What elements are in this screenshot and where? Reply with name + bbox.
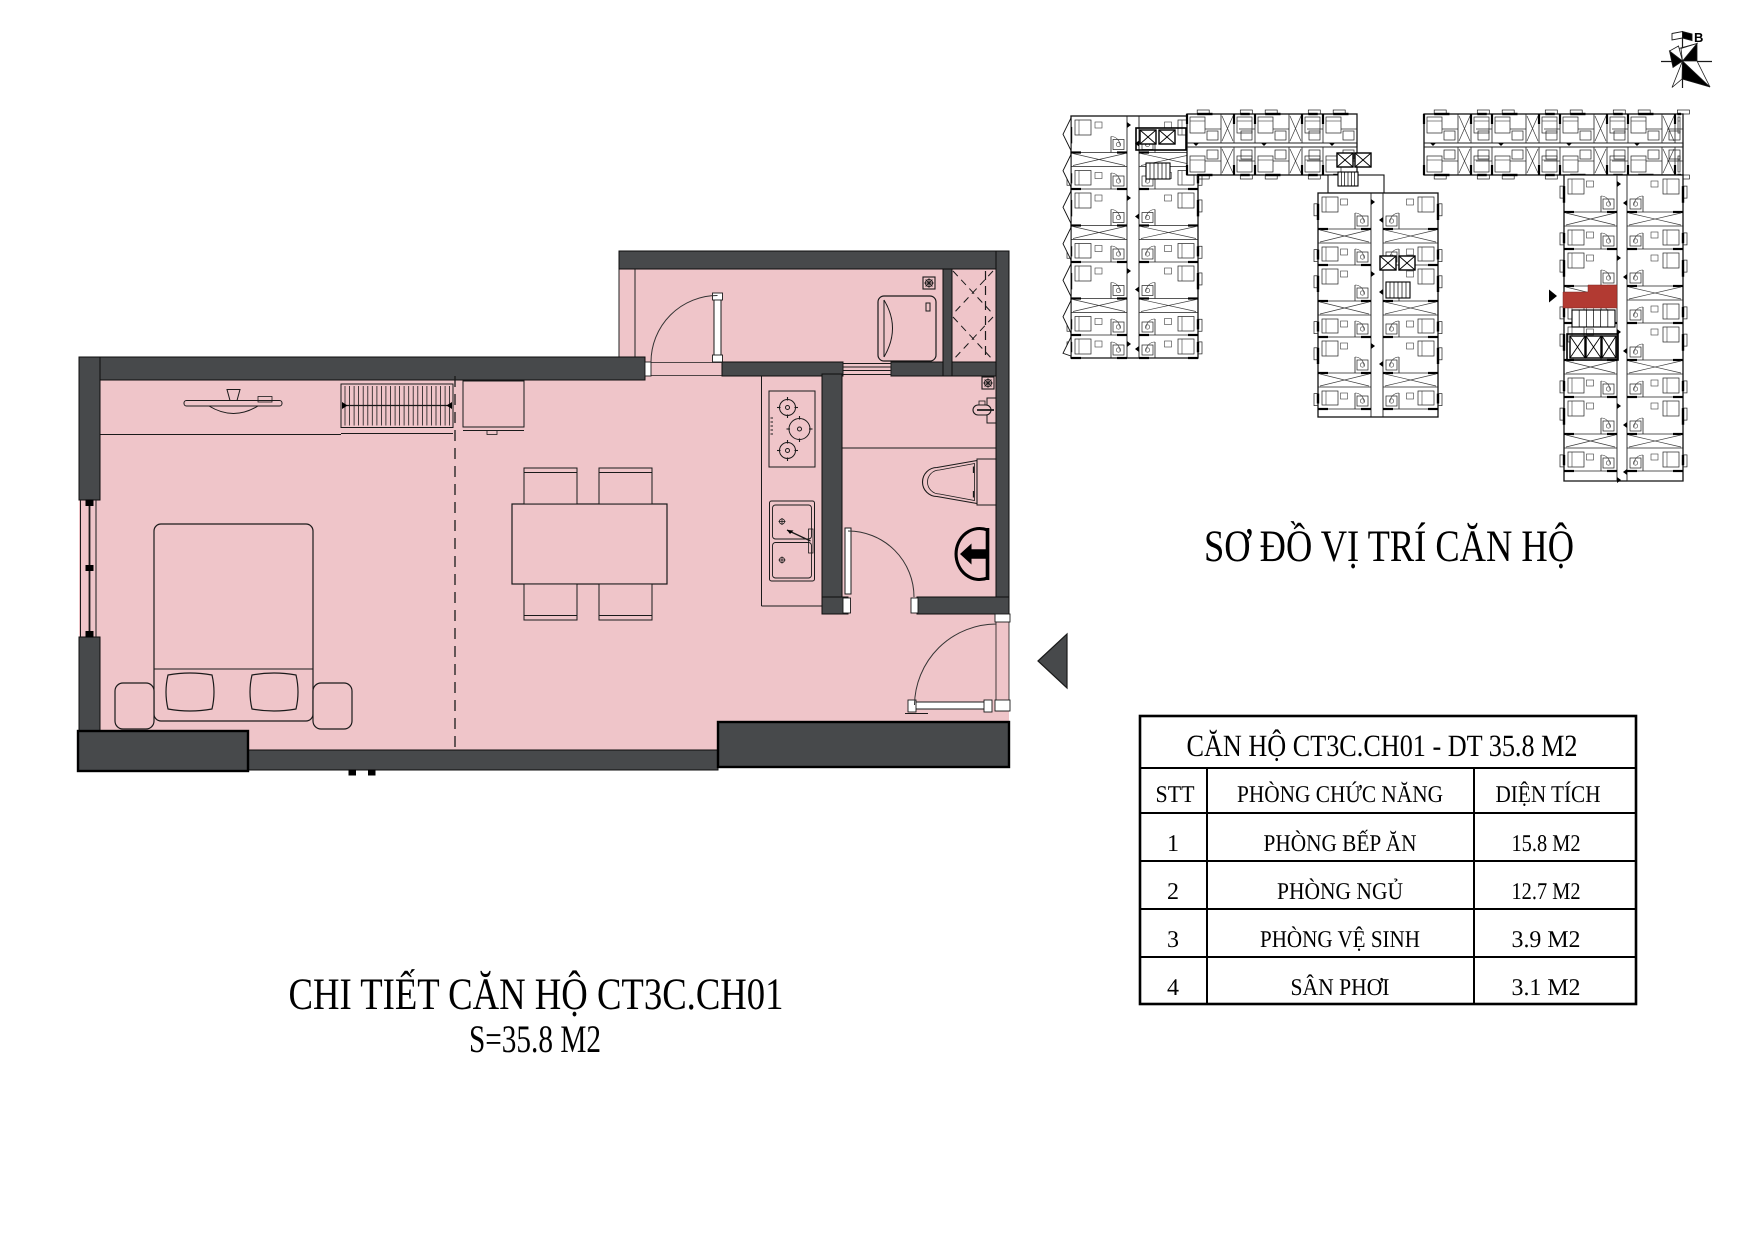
svg-text:2: 2 (1167, 879, 1179, 905)
svg-text:4: 4 (1167, 975, 1179, 1001)
svg-text:PHÒNG BẾP ĂN: PHÒNG BẾP ĂN (1264, 829, 1417, 857)
svg-text:1: 1 (1167, 831, 1179, 857)
svg-text:S=35.8 M2: S=35.8 M2 (469, 1018, 601, 1061)
svg-text:PHÒNG NGỦ: PHÒNG NGỦ (1277, 878, 1403, 905)
svg-text:DIỆN TÍCH: DIỆN TÍCH (1496, 781, 1601, 808)
svg-text:CHI TIẾT CĂN HỘ CT3C.CH01: CHI TIẾT CĂN HỘ CT3C.CH01 (289, 969, 784, 1019)
svg-text:PHÒNG VỆ SINH: PHÒNG VỆ SINH (1260, 926, 1420, 953)
svg-text:3: 3 (1167, 927, 1179, 953)
svg-text:SƠ ĐỒ VỊ TRÍ CĂN HỘ: SƠ ĐỒ VỊ TRÍ CĂN HỘ (1204, 521, 1574, 571)
svg-text:PHÒNG CHỨC NĂNG: PHÒNG CHỨC NĂNG (1237, 781, 1443, 808)
svg-text:B: B (1694, 30, 1703, 45)
svg-text:3.9 M2: 3.9 M2 (1512, 927, 1581, 953)
svg-text:CĂN HỘ CT3C.CH01 - DT 35.8 M2: CĂN HỘ CT3C.CH01 - DT 35.8 M2 (1187, 728, 1578, 763)
svg-text:STT: STT (1156, 782, 1195, 808)
svg-text:15.8 M2: 15.8 M2 (1512, 831, 1581, 857)
svg-text:12.7 M2: 12.7 M2 (1512, 879, 1581, 905)
svg-text:SÂN PHƠI: SÂN PHƠI (1291, 974, 1390, 1001)
svg-text:3.1 M2: 3.1 M2 (1512, 975, 1581, 1001)
